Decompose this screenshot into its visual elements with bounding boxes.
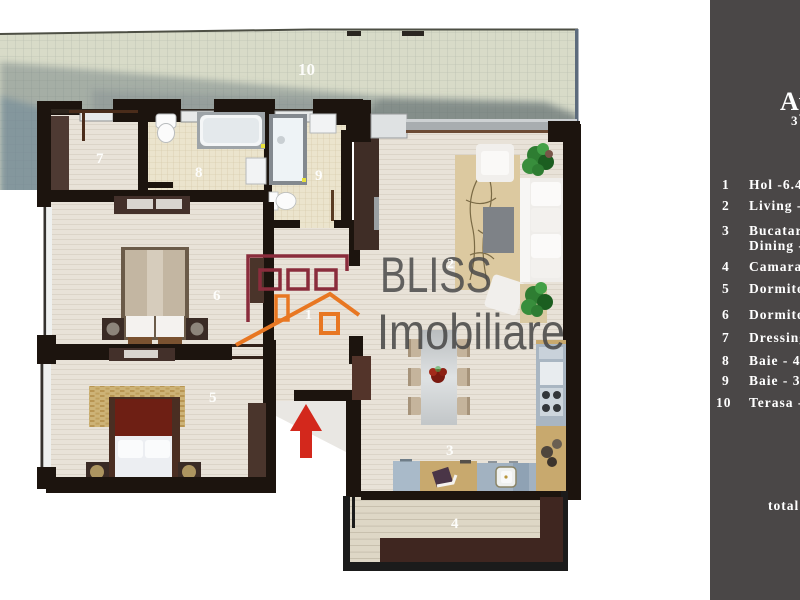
svg-text:Baie - 3.: Baie - 3. <box>749 373 800 388</box>
svg-text:3: 3 <box>446 443 454 459</box>
svg-text:8: 8 <box>722 353 730 368</box>
svg-text:3: 3 <box>722 223 730 238</box>
svg-text:5: 5 <box>209 390 217 406</box>
svg-text:3 camere: 3 camere <box>791 113 800 128</box>
svg-text:Dining -: Dining - <box>749 238 800 253</box>
svg-text:4: 4 <box>451 516 459 532</box>
svg-text:5: 5 <box>722 281 730 296</box>
svg-text:Terasa -: Terasa - <box>749 395 800 410</box>
svg-text:7: 7 <box>96 151 104 167</box>
svg-text:10: 10 <box>298 60 315 79</box>
svg-text:9: 9 <box>315 168 323 184</box>
svg-text:Baie - 4.: Baie - 4. <box>749 353 800 368</box>
svg-text:6: 6 <box>213 288 221 304</box>
svg-text:Apartament: Apartament <box>780 87 800 116</box>
svg-text:Bucatar: Bucatar <box>749 223 800 238</box>
svg-text:Camara: Camara <box>749 259 800 274</box>
svg-text:2: 2 <box>722 198 730 213</box>
svg-text:9: 9 <box>722 373 730 388</box>
svg-text:Dormito: Dormito <box>749 281 800 296</box>
svg-text:Dormito: Dormito <box>749 307 800 322</box>
svg-text:Imobiliare: Imobiliare <box>377 304 565 360</box>
svg-text:10: 10 <box>716 395 732 410</box>
svg-text:1: 1 <box>722 177 730 192</box>
svg-text:2: 2 <box>447 257 454 272</box>
svg-text:Hol -6.4: Hol -6.4 <box>749 177 800 192</box>
svg-text:total =: total = <box>768 498 800 513</box>
svg-text:BLISS: BLISS <box>380 247 492 303</box>
svg-text:4: 4 <box>722 259 730 274</box>
svg-text:Living -: Living - <box>749 198 800 213</box>
svg-text:1: 1 <box>305 308 312 323</box>
svg-text:8: 8 <box>195 165 203 181</box>
svg-text:Dressing: Dressing <box>749 330 800 345</box>
svg-text:7: 7 <box>722 330 730 345</box>
svg-text:6: 6 <box>722 307 730 322</box>
